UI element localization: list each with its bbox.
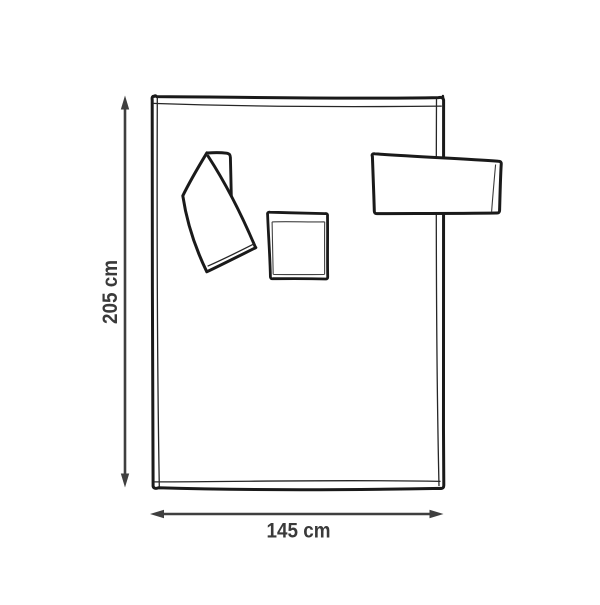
svg-text:145 cm: 145 cm <box>267 519 331 543</box>
svg-text:205 cm: 205 cm <box>98 260 122 324</box>
